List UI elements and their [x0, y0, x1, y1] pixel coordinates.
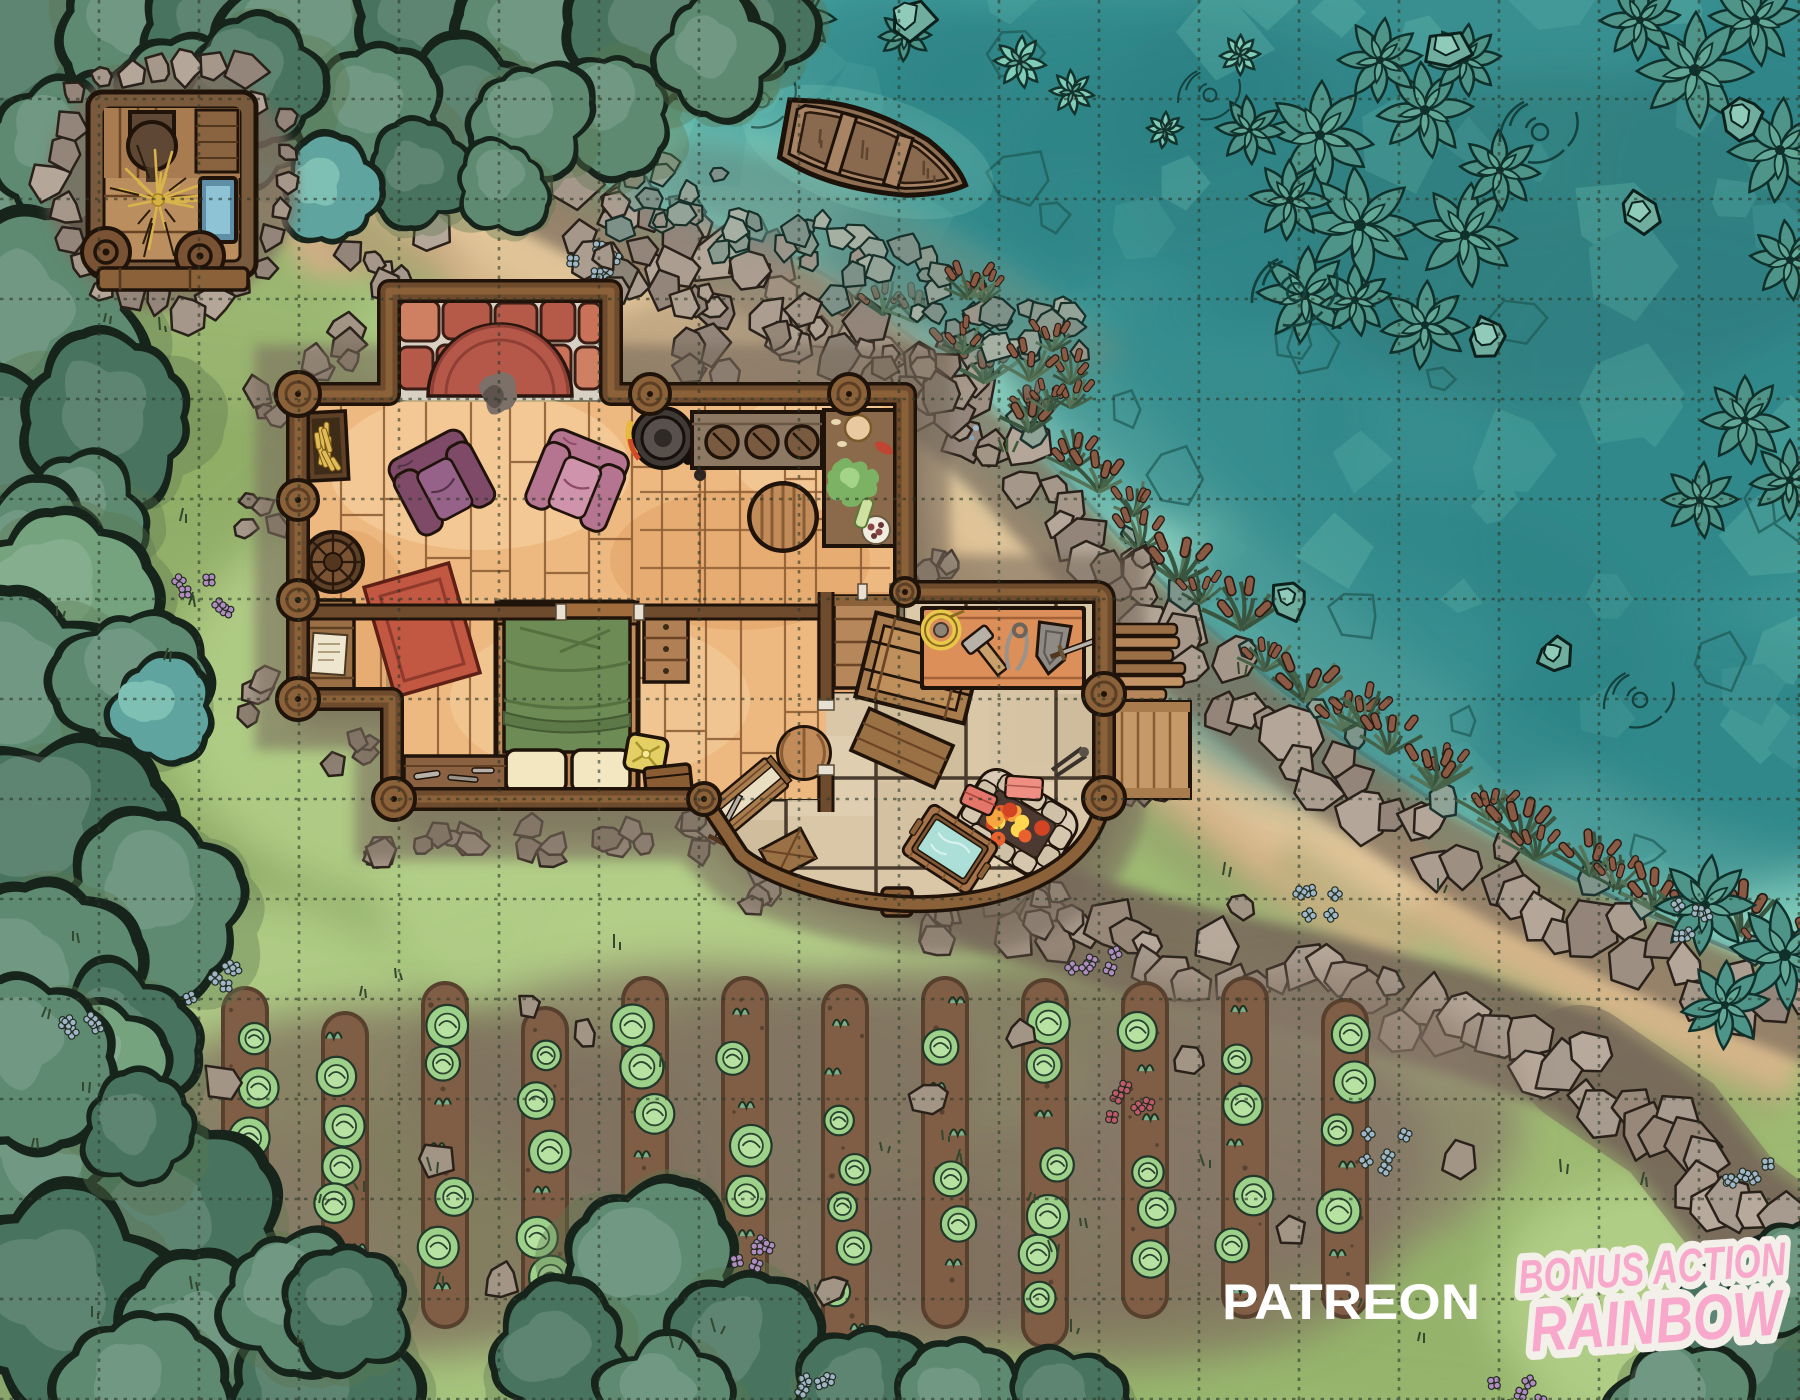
svg-text:PATREON: PATREON: [1222, 1274, 1480, 1330]
